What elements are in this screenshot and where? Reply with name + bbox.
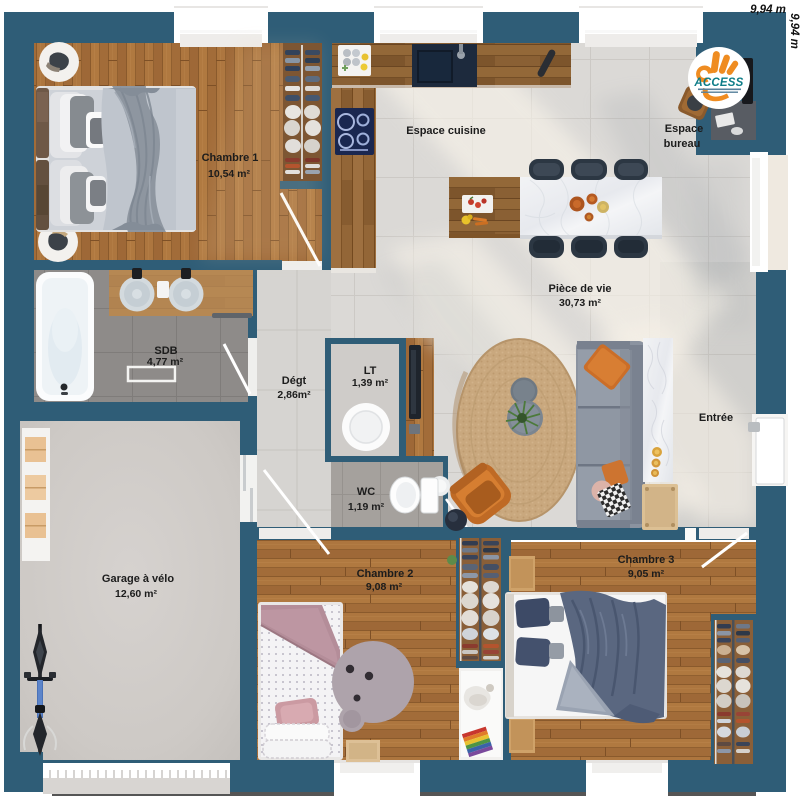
svg-text:9,08 m²: 9,08 m² — [366, 581, 403, 593]
svg-text:9,94 m: 9,94 m — [750, 4, 786, 16]
svg-text:WC: WC — [357, 486, 375, 498]
svg-text:9,94 m: 9,94 m — [788, 13, 800, 49]
svg-text:Espace cuisine: Espace cuisine — [406, 125, 486, 137]
svg-text:Espace: Espace — [665, 123, 704, 135]
svg-text:Dégt: Dégt — [282, 375, 307, 387]
svg-text:Chambre 3: Chambre 3 — [618, 554, 675, 566]
svg-text:1,39 m²: 1,39 m² — [352, 377, 389, 389]
svg-text:Chambre 1: Chambre 1 — [202, 152, 259, 164]
svg-text:4,77 m²: 4,77 m² — [147, 356, 184, 368]
svg-text:Entrée: Entrée — [699, 412, 733, 424]
svg-text:bureau: bureau — [664, 138, 701, 150]
svg-text:Chambre 2: Chambre 2 — [357, 568, 414, 580]
svg-text:10,54 m²: 10,54 m² — [208, 168, 251, 180]
svg-text:Pièce de vie: Pièce de vie — [549, 283, 612, 295]
svg-text:2,86m²: 2,86m² — [277, 389, 311, 401]
svg-text:LT: LT — [364, 365, 377, 377]
svg-text:9,05 m²: 9,05 m² — [628, 568, 665, 580]
svg-text:ACCESS: ACCESS — [693, 77, 743, 89]
svg-text:1,19 m²: 1,19 m² — [348, 501, 385, 513]
svg-text:30,73 m²: 30,73 m² — [559, 297, 602, 309]
svg-text:12,60 m²: 12,60 m² — [115, 588, 158, 600]
svg-text:Garage à vélo: Garage à vélo — [102, 573, 174, 585]
